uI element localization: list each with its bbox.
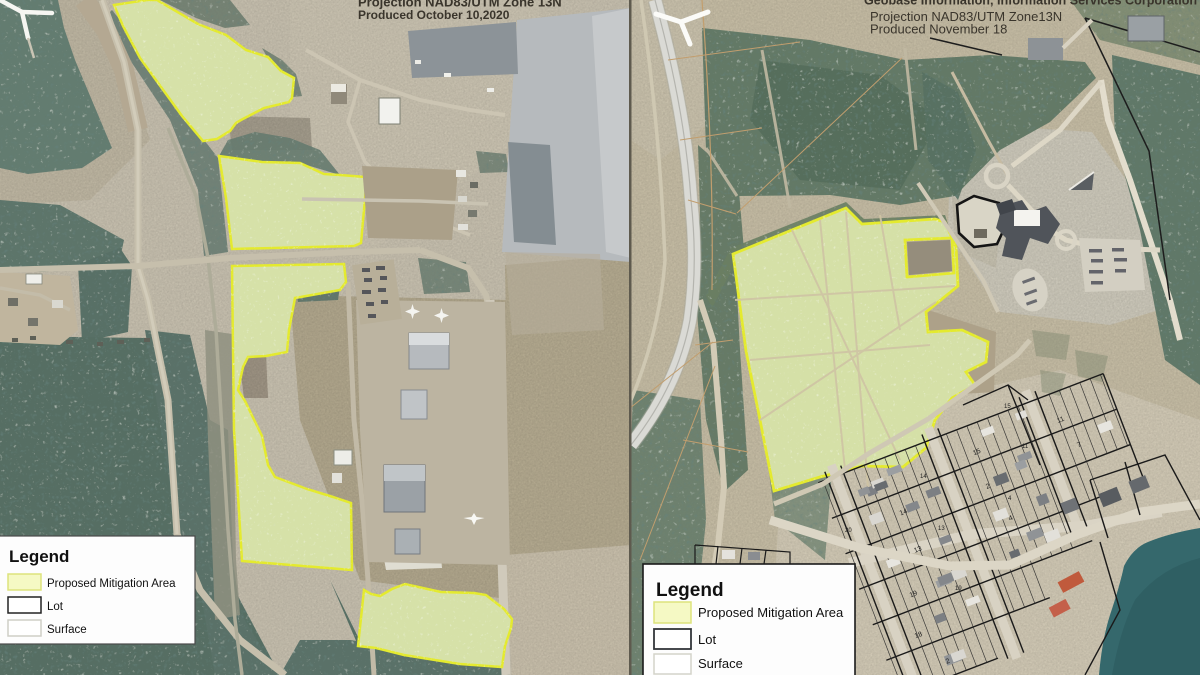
svg-text:Surface: Surface [698, 656, 743, 671]
svg-text:Lot: Lot [698, 632, 716, 647]
svg-text:Legend: Legend [656, 580, 724, 601]
svg-text:Produced October 10,2020: Produced October 10,2020 [358, 8, 510, 22]
svg-text:Proposed Mitigation Area: Proposed Mitigation Area [47, 578, 176, 590]
svg-text:14: 14 [920, 474, 927, 480]
svg-text:15: 15 [1004, 404, 1011, 410]
svg-text:11: 11 [1022, 444, 1029, 450]
svg-text:Lot: Lot [47, 601, 64, 613]
svg-text:Produced November 18: Produced November 18 [870, 22, 1007, 37]
svg-text:Legend: Legend [9, 547, 69, 566]
svg-text:19: 19 [955, 586, 962, 592]
svg-text:20: 20 [845, 528, 852, 534]
svg-text:Surface: Surface [47, 624, 87, 636]
svg-text:13: 13 [938, 526, 945, 532]
svg-text:Proposed Mitigation Area: Proposed Mitigation Area [698, 605, 844, 620]
svg-text:Geobase Information, Informati: Geobase Information, Information Service… [864, 0, 1197, 8]
